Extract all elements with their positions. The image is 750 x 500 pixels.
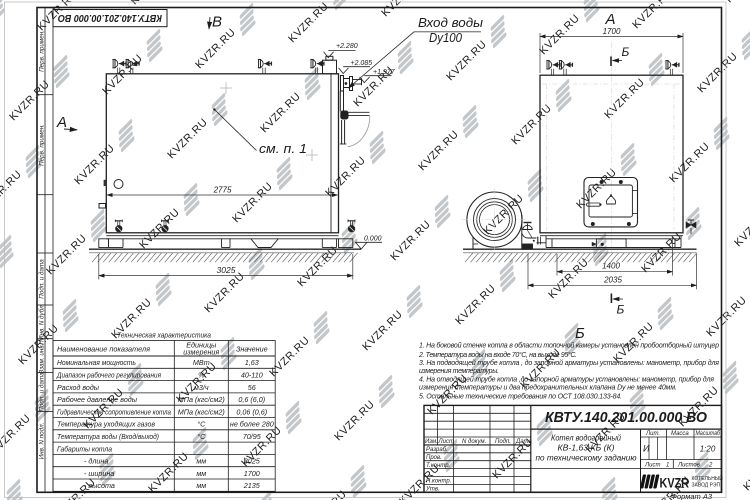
svg-text:2135: 2135 (243, 481, 261, 490)
svg-text:Лист: Лист (644, 462, 660, 468)
svg-text:N докум.: N докум. (462, 439, 486, 445)
svg-text:+1.977: +1.977 (373, 69, 396, 76)
svg-text:Наименование показателя: Наименование показателя (57, 345, 150, 354)
svg-text:Дата: Дата (515, 439, 532, 445)
svg-text:не более 280: не более 280 (230, 420, 274, 429)
svg-text:Б: Б (617, 303, 625, 317)
svg-text:- длина: - длина (84, 457, 108, 466)
svg-text:Б: Б (622, 45, 630, 59)
svg-text:Б: Б (575, 325, 585, 342)
svg-text:Котел водогрейный: Котел водогрейный (551, 434, 621, 443)
svg-text:0,6 (6,0): 0,6 (6,0) (238, 395, 265, 404)
svg-text:%: % (198, 371, 205, 380)
svg-text:1700: 1700 (244, 469, 260, 478)
svg-text:КВТУ.140.201.00.000 ВО: КВТУ.140.201.00.000 ВО (58, 12, 162, 23)
svg-text:Габариты котла: Габариты котла (57, 444, 112, 453)
svg-text:3025: 3025 (244, 457, 261, 466)
svg-text:2. Температура воды на входе: 2. Температура воды на входе 70°С, на вы… (418, 351, 577, 359)
svg-text:Формат А3: Формат А3 (671, 492, 713, 500)
svg-text:см. п. 1: см. п. 1 (259, 141, 307, 156)
svg-text:Температура воды (Вход/выход): Температура воды (Вход/выход) (57, 432, 159, 441)
svg-text:по техническому заданию: по техническому заданию (536, 454, 637, 463)
svg-text:Рабочее давление воды: Рабочее давление воды (57, 395, 138, 404)
svg-text:Изм.: Изм. (425, 439, 438, 445)
svg-text:5. Остальные технические требо: 5. Остальные технические требования по О… (419, 393, 622, 401)
svg-text:Гидравлическое сопротивление к: Гидравлическое сопротивление котла (57, 407, 171, 416)
svg-text:Значение: Значение (236, 345, 268, 354)
svg-text:Вход воды: Вход воды (418, 15, 483, 30)
svg-text:измерения температуры.: измерения температуры. (419, 368, 499, 375)
svg-text:Dy100: Dy100 (429, 30, 463, 45)
svg-text:Перв. примен.: Перв. примен. (39, 30, 46, 72)
svg-text:1,63: 1,63 (245, 358, 259, 367)
svg-text:+2.280: +2.280 (336, 43, 358, 50)
svg-text:Подп. и дата: Подп. и дата (38, 372, 46, 412)
svg-text:КВ-1,63 КБ (К): КВ-1,63 КБ (К) (558, 444, 615, 453)
svg-text:А: А (605, 11, 616, 28)
svg-text:Лист: Лист (438, 439, 454, 445)
svg-text:Техническая характеристика: Техническая характеристика (117, 331, 211, 340)
svg-text:В: В (212, 14, 222, 31)
svg-text:Инв. N подл.: Инв. N подл. (38, 423, 46, 460)
svg-text:0,06 (0,6): 0,06 (0,6) (236, 407, 267, 416)
svg-text:40-110: 40-110 (241, 371, 263, 380)
svg-text:Н.контр.: Н.контр. (426, 479, 451, 485)
svg-text:Инв. N дубл.: Инв. N дубл. (38, 304, 46, 340)
svg-text:мм: мм (196, 457, 206, 466)
svg-text:Подп.: Подп. (495, 439, 511, 445)
svg-text:МПа (кгс/см2): МПа (кгс/см2) (178, 407, 225, 416)
svg-text:Взам. инв. N: Взам. инв. N (39, 337, 46, 374)
svg-text:°С: °С (197, 420, 206, 429)
svg-text:ЗАВОД РЭП: ЗАВОД РЭП (692, 483, 721, 489)
svg-text:4. На отводящей трубе котла ,д: 4. На отводящей трубе котла ,до запорной… (419, 376, 714, 384)
svg-text:МВт: МВт (193, 358, 210, 367)
svg-text:Листов: Листов (677, 462, 700, 468)
svg-text:Расход воды: Расход воды (57, 383, 100, 392)
svg-text:1700: 1700 (603, 27, 621, 36)
svg-text:МПа (кгс/см2): МПа (кгс/см2) (178, 395, 225, 404)
svg-text:Лит.: Лит. (645, 431, 660, 437)
svg-text:Пров.: Пров. (426, 455, 442, 461)
svg-text:КВТУ.140.201.00.000 ВО: КВТУ.140.201.00.000 ВО (545, 410, 708, 426)
svg-text:измерения: измерения (183, 348, 219, 357)
svg-text:- высота: - высота (84, 481, 115, 490)
svg-text:0.000: 0.000 (364, 235, 382, 242)
svg-text:мм: мм (196, 481, 206, 490)
svg-text:70/95: 70/95 (243, 432, 262, 441)
svg-text:Масштаб: Масштаб (696, 431, 721, 437)
svg-text:И: И (643, 444, 650, 454)
svg-text:- ширина: - ширина (84, 469, 114, 478)
svg-text:1400: 1400 (602, 262, 620, 271)
svg-text:мм: мм (196, 469, 206, 478)
svg-text:Температура уходящих газов: Температура уходящих газов (57, 420, 155, 429)
svg-text:Масса: Масса (671, 431, 689, 437)
svg-text:Разраб.: Разраб. (426, 447, 448, 453)
svg-text:2775: 2775 (213, 185, 232, 194)
svg-text:Перв. примен.: Перв. примен. (39, 124, 46, 166)
svg-text:+2.085: +2.085 (351, 60, 373, 67)
svg-text:м3/ч: м3/ч (194, 383, 209, 392)
svg-text:2035: 2035 (603, 276, 622, 285)
svg-text:А: А (56, 114, 67, 131)
svg-text:Номинальная мощность: Номинальная мощность (57, 358, 136, 367)
svg-text:Диапазон рабочего регулировани: Диапазон рабочего регулирования (56, 371, 161, 380)
svg-text:KVZR: KVZR (660, 475, 690, 491)
svg-text:измерения температуры и два пр: измерения температуры и два предохраните… (419, 383, 677, 391)
svg-text:1:20: 1:20 (700, 445, 716, 454)
svg-text:3. На подводящей трубе котла ,: 3. На подводящей трубе котла , до запорн… (419, 359, 719, 367)
svg-text:Утв.: Утв. (425, 487, 440, 493)
svg-text:КОТЕЛЬНЫЙ: КОТЕЛЬНЫЙ (692, 474, 724, 482)
svg-text:°С: °С (197, 432, 206, 441)
svg-text:Т.контр.: Т.контр. (426, 463, 450, 469)
svg-text:1: 1 (666, 462, 669, 468)
svg-text:2: 2 (708, 462, 713, 468)
svg-text:Подп. и дата: Подп. и дата (38, 259, 46, 299)
svg-text:56: 56 (248, 383, 256, 392)
svg-text:3025: 3025 (217, 265, 236, 275)
svg-text:1. На боковой стенке котла в о: 1. На боковой стенке котла в области топ… (419, 342, 719, 350)
